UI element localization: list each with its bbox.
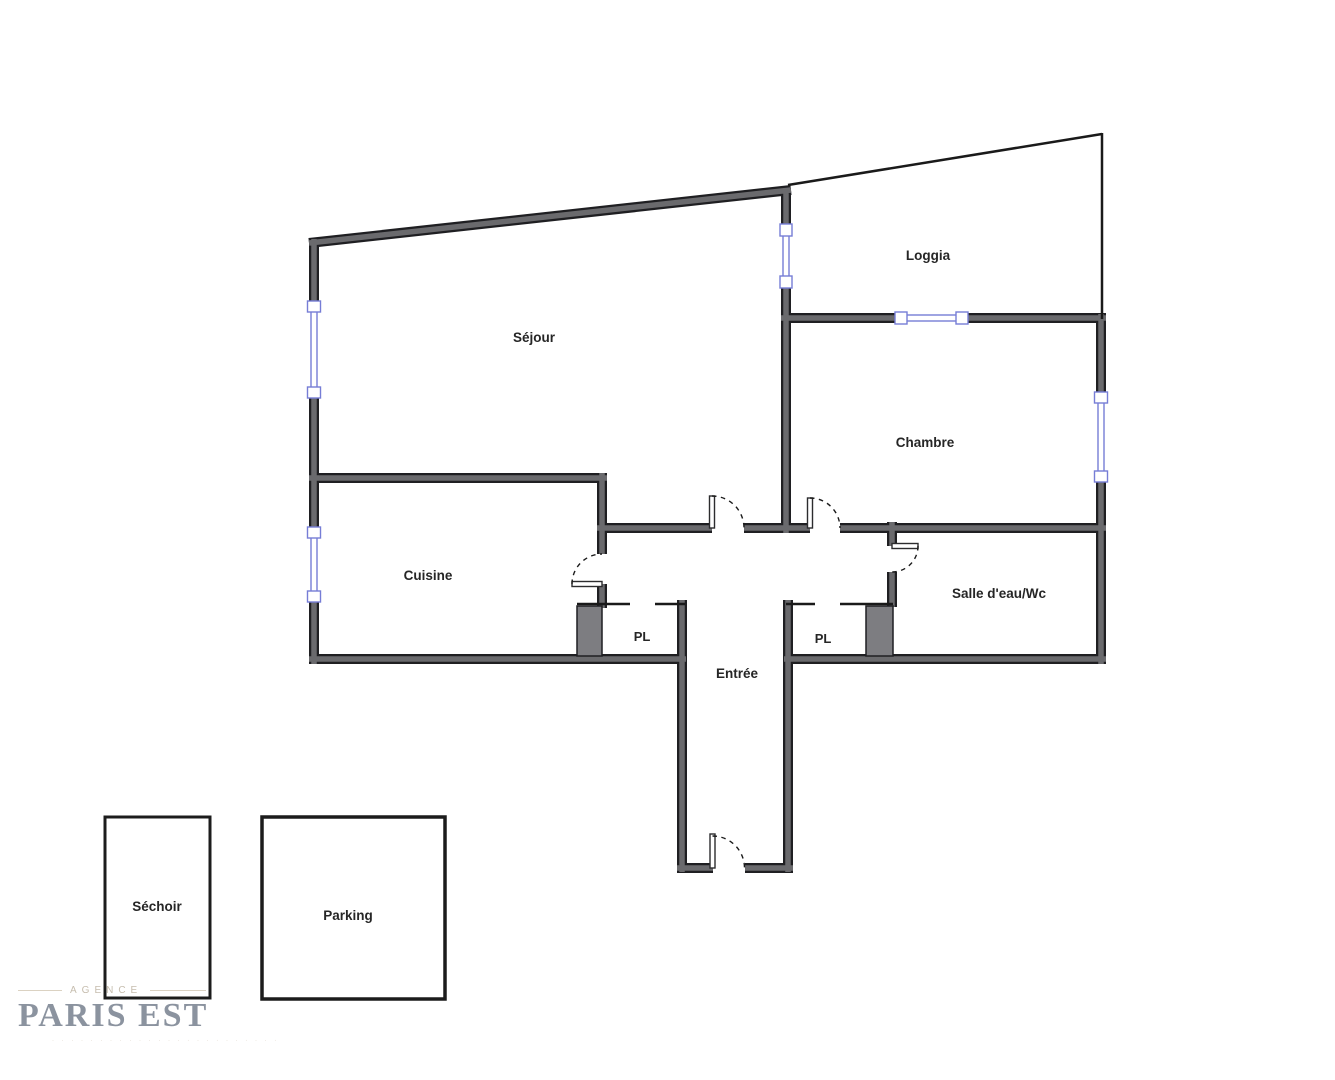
- door-arc-sejour: [712, 496, 744, 528]
- room-label-sechoir: Séchoir: [132, 899, 182, 914]
- door-leaf-entree: [710, 834, 715, 868]
- door-arcs: [572, 496, 918, 868]
- logo-rule-right: [150, 990, 206, 991]
- logo-tagline: · · · · · · · · · · · · · · · · · · · · …: [18, 1038, 279, 1044]
- closet-box-right: [866, 606, 893, 656]
- window-sejour-left: [308, 301, 321, 398]
- room-label-pl-right: PL: [815, 631, 832, 646]
- closet-boxes: [577, 606, 893, 656]
- floor-plan-svg: Séjour Loggia Chambre Cuisine Salle d'ea…: [0, 0, 1335, 1080]
- room-label-salle-eau: Salle d'eau/Wc: [952, 586, 1046, 601]
- window-chambre-right: [1095, 392, 1108, 482]
- door-leaf-salle-eau: [892, 544, 918, 549]
- room-label-pl-left: PL: [634, 629, 651, 644]
- logo-overline: AGENCE: [70, 985, 142, 996]
- closet-box-left: [577, 606, 602, 656]
- logo-overline-row: AGENCE: [18, 985, 279, 996]
- logo-rule-left: [18, 990, 62, 991]
- room-label-entree: Entrée: [716, 666, 759, 681]
- room-label-sejour: Séjour: [513, 330, 556, 345]
- logo-title: PARIS EST: [18, 997, 279, 1035]
- door-leaves: [572, 496, 918, 868]
- floor-plan-page: Séjour Loggia Chambre Cuisine Salle d'ea…: [0, 0, 1335, 1080]
- window-loggia-chambre: [895, 312, 968, 324]
- walls-core: [309, 188, 1106, 872]
- door-arc-salle-eau: [892, 546, 918, 572]
- room-label-parking: Parking: [323, 908, 373, 923]
- door-leaf-sejour: [710, 496, 715, 528]
- room-label-loggia: Loggia: [906, 248, 951, 263]
- window-cuisine-left: [308, 527, 321, 602]
- door-arc-cuisine: [572, 554, 602, 584]
- door-arc-entree: [713, 836, 745, 868]
- door-arc-chambre: [810, 498, 840, 528]
- room-label-chambre: Chambre: [896, 435, 955, 450]
- agency-logo: AGENCE PARIS EST · · · · · · · · · · · ·…: [18, 985, 279, 1044]
- windows: [308, 224, 1108, 602]
- door-leaf-chambre: [808, 498, 813, 528]
- window-sejour-loggia: [780, 224, 792, 288]
- room-label-cuisine: Cuisine: [404, 568, 453, 583]
- door-leaf-cuisine: [572, 582, 602, 587]
